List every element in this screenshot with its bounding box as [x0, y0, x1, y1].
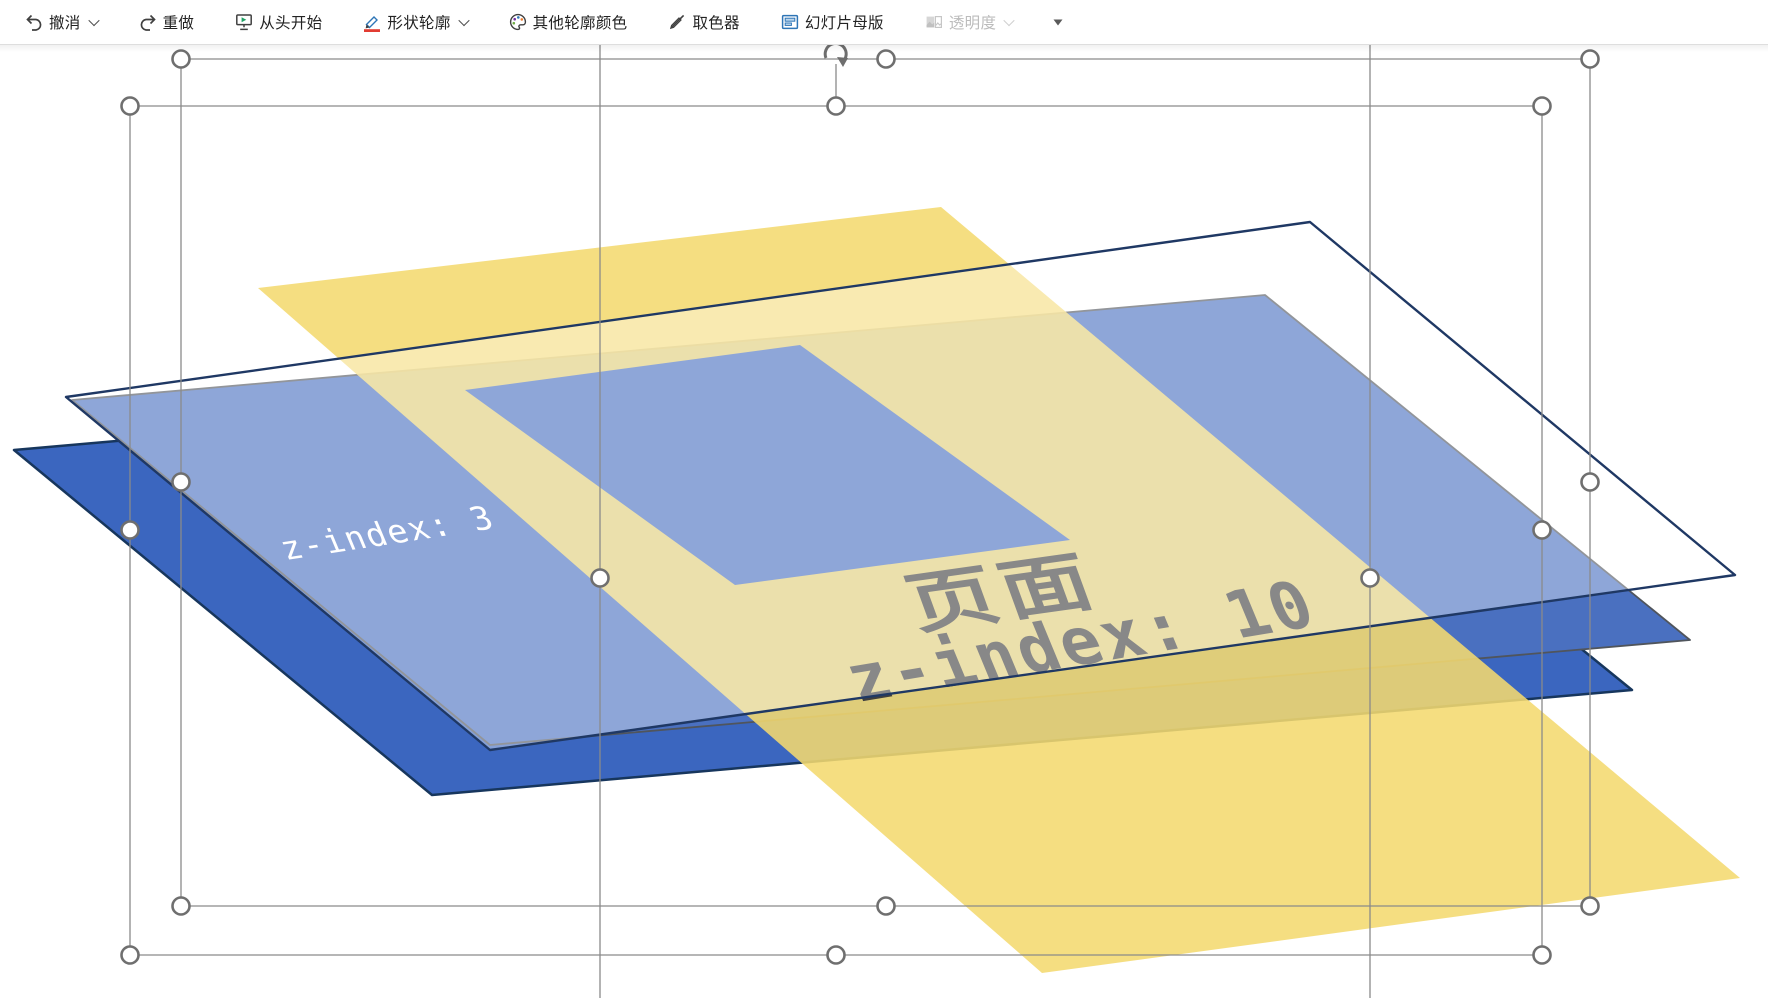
selection-handle[interactable]: [592, 570, 609, 587]
toolbar-overflow-button[interactable]: [1051, 16, 1065, 28]
transparency-label: 透明度: [949, 11, 996, 33]
redo-icon: [138, 12, 158, 32]
selection-handle[interactable]: [1582, 898, 1599, 915]
selection-handle[interactable]: [828, 947, 845, 964]
more-outline-colors-button[interactable]: 其他轮廓颜色: [508, 11, 628, 33]
selection-handle[interactable]: [1534, 98, 1551, 115]
color-picker-label: 取色器: [692, 11, 739, 33]
quick-access-toolbar: 撤消 重做 从头开始 形状轮廓: [0, 0, 1768, 45]
redo-button[interactable]: 重做: [138, 11, 195, 33]
selection-handle[interactable]: [1582, 474, 1599, 491]
transparency-icon: [924, 12, 944, 32]
selection-handle[interactable]: [173, 474, 190, 491]
selection-handle[interactable]: [122, 522, 139, 539]
selection-handle[interactable]: [122, 98, 139, 115]
selection-handle[interactable]: [1362, 570, 1379, 587]
shape-outline-pencil-icon: [362, 12, 382, 32]
slide-master-button[interactable]: 幻灯片母版: [780, 11, 884, 33]
present-from-start-button[interactable]: 从头开始: [234, 11, 322, 33]
selection-handle[interactable]: [173, 898, 190, 915]
selection-handle[interactable]: [173, 51, 190, 68]
color-picker-button[interactable]: 取色器: [667, 11, 739, 33]
transparency-button: 透明度: [924, 11, 1013, 33]
selection-handle[interactable]: [1534, 522, 1551, 539]
shape-outline-button[interactable]: 形状轮廓: [362, 11, 467, 33]
selection-handle[interactable]: [828, 98, 845, 115]
selection-handle[interactable]: [122, 947, 139, 964]
rotation-handle-icon[interactable]: [825, 43, 848, 67]
chevron-down-icon[interactable]: [88, 15, 99, 26]
selection-handle[interactable]: [1534, 947, 1551, 964]
eyedropper-icon: [667, 12, 687, 32]
undo-label: 撤消: [49, 11, 81, 33]
undo-button[interactable]: 撤消: [24, 11, 98, 33]
present-from-start-label: 从头开始: [259, 11, 322, 33]
selection-handle[interactable]: [878, 51, 895, 68]
slide-master-icon: [780, 12, 800, 32]
chevron-down-icon: [1004, 15, 1015, 26]
slide-master-label: 幻灯片母版: [805, 11, 884, 33]
chevron-down-icon[interactable]: [458, 15, 469, 26]
ribbon-overflow-icon: [1051, 16, 1065, 28]
redo-label: 重做: [163, 11, 195, 33]
slide-canvas[interactable]: z-index: 3 页面 z-index: 10: [0, 0, 1768, 998]
more-outline-colors-label: 其他轮廓颜色: [533, 11, 628, 33]
palette-icon: [508, 12, 528, 32]
selection-handle[interactable]: [1582, 51, 1599, 68]
present-from-start-icon: [234, 12, 254, 32]
selection-handle[interactable]: [878, 898, 895, 915]
shape-outline-label: 形状轮廓: [387, 11, 450, 33]
undo-icon: [24, 12, 44, 32]
